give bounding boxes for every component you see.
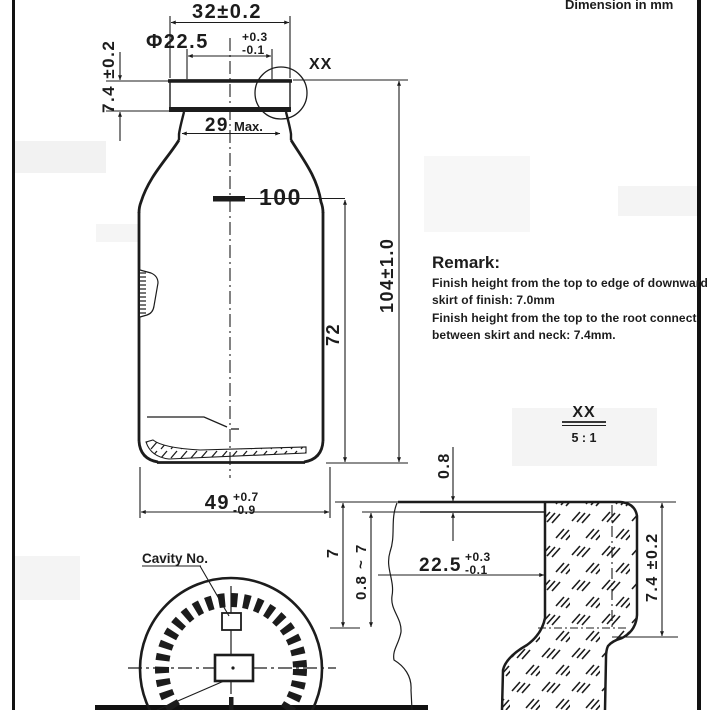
dim-bore-label: Φ22.5 [146, 31, 209, 53]
detail-scale-label: 5 : 1 [571, 431, 596, 445]
frame-left-border [12, 0, 15, 710]
bottle-bottom-view [128, 566, 336, 710]
cavity-label: Cavity No. [142, 551, 208, 566]
dim-detail-bore-label: 22.5 [419, 555, 462, 576]
side-graduation-mark [140, 270, 158, 317]
cavity-number-box [222, 613, 241, 630]
detail-title-label: XX [572, 404, 595, 421]
section-glass-hatch [502, 502, 637, 710]
dim-finish-height-label: 7.4 ±0.2 [99, 40, 118, 113]
dim-body-dia-tol-minus: -0.9 [233, 503, 256, 517]
dim-skirt-height-label: 7 [325, 548, 342, 558]
dim-skirt-range-label: 0.8 ~ 7 [353, 543, 370, 600]
dim-detail-bore-tol-plus: +0.3 [465, 550, 491, 564]
dim-bore-tol-minus: -0.1 [242, 43, 265, 57]
remark-title: Remark: [432, 253, 500, 272]
remark-line-3: Finish height from the top to the root c… [432, 311, 697, 325]
engineering-drawing-page: Dimension in mm [0, 0, 710, 710]
dim-finish-od-label: 32±0.2 [192, 1, 262, 23]
dim-total-height-label: 104±1.0 [377, 238, 397, 313]
section-break-line [389, 503, 412, 710]
bottle-technical-drawing: Dimension in mm [0, 0, 710, 710]
remark-line-2: skirt of finish: 7.0mm [432, 293, 555, 307]
remark-line-1: Finish height from the top to edge of do… [432, 276, 708, 290]
bottle-front-view [139, 38, 345, 478]
bottom-scan-bar [95, 705, 428, 710]
bottom-tick-mark [229, 697, 234, 710]
dim-rim-depth-label: 0.8 [436, 452, 453, 479]
fill-level-mark [213, 196, 245, 202]
bottle-base-glass-hatch [146, 440, 306, 459]
dim-bore-tol-plus: +0.3 [242, 30, 268, 44]
dim-finish-height [106, 52, 186, 141]
dim-body-dia-tol-plus: +0.7 [233, 490, 259, 504]
remark-line-4: between skirt and neck: 7.4mm. [432, 328, 616, 342]
fill-level-label: 100 [259, 184, 302, 210]
detail-callout-label: XX [309, 56, 332, 73]
dim-neck-value: 29 [205, 115, 229, 136]
finish-section-detail [330, 447, 678, 710]
bottle-inner-bottom-line [147, 417, 227, 427]
frame-right-border [697, 0, 701, 710]
dim-fill-height-label: 72 [323, 323, 343, 346]
remark-block: Remark: Finish height from the top to ed… [432, 253, 708, 342]
units-label: Dimension in mm [565, 0, 673, 12]
dim-root-height-label: 7.4 ±0.2 [644, 532, 661, 602]
dim-detail-bore-tol-minus: -0.1 [465, 563, 488, 577]
dim-body-dia-label: 49 [205, 492, 230, 514]
dim-neck-suffix: Max. [234, 119, 263, 134]
